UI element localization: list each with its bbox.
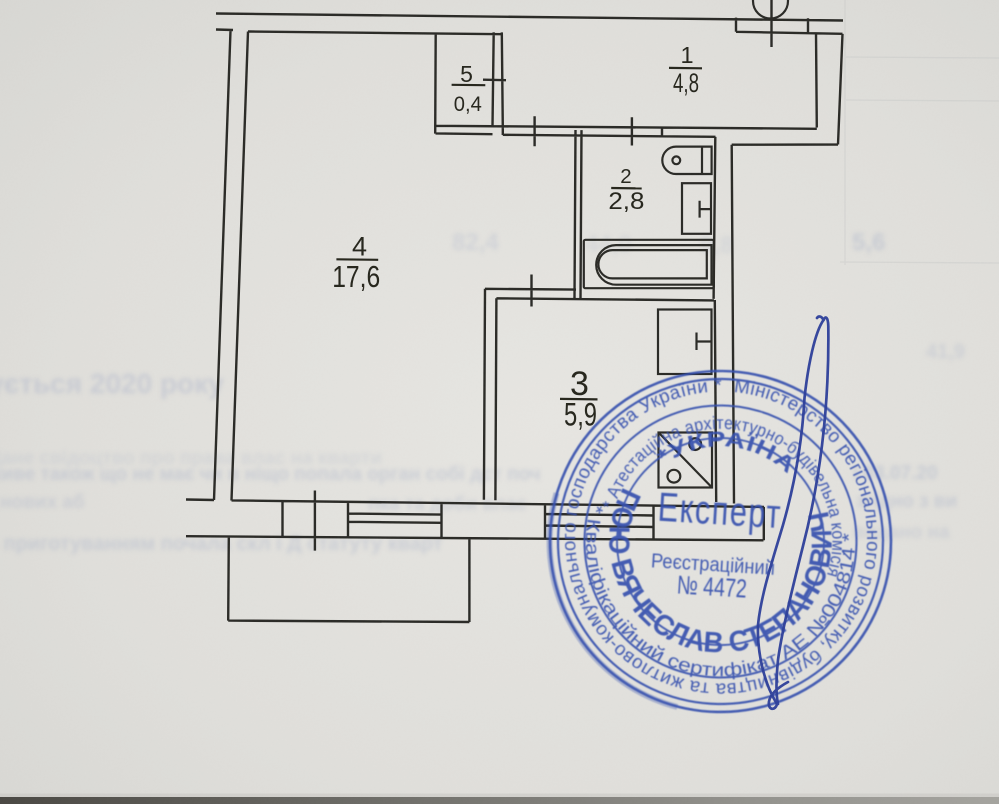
svg-text:1: 1 [680, 42, 693, 68]
svg-text:Експерт: Експерт [657, 484, 784, 537]
svg-text:4,8: 4,8 [673, 68, 699, 98]
svg-text:№ 4472: № 4472 [676, 569, 748, 603]
svg-text:2: 2 [620, 165, 631, 188]
svg-text:41,9: 41,9 [926, 341, 965, 363]
svg-text:зується 2020 року: зується 2020 року [0, 368, 224, 399]
svg-text:5,6: 5,6 [852, 229, 885, 256]
svg-text:живе також що не має чи в ніщо: живе також що не має чи в ніщо попала ор… [0, 464, 541, 485]
svg-text:5,9: 5,9 [564, 397, 597, 433]
svg-text:нових аб: нових аб [0, 492, 85, 513]
svg-text:2,8: 2,8 [608, 188, 644, 215]
svg-text:17,6: 17,6 [332, 259, 380, 294]
svg-text:4: 4 [352, 231, 367, 261]
svg-text:82,4: 82,4 [452, 229, 499, 256]
svg-text:0,4: 0,4 [454, 92, 482, 116]
svg-text:5: 5 [460, 61, 473, 87]
